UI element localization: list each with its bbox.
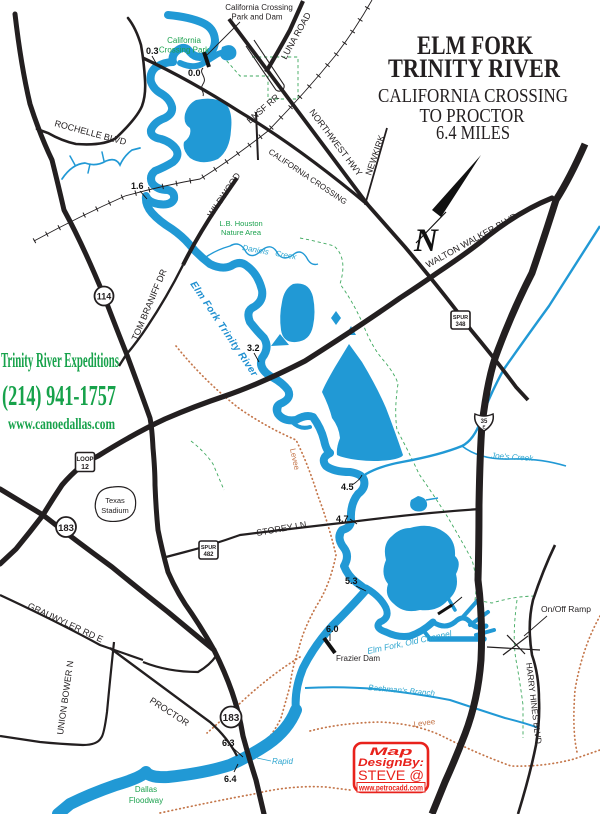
- svg-text:12: 12: [81, 464, 89, 471]
- svg-text:TRINITY RIVER: TRINITY RIVER: [388, 54, 560, 83]
- svg-text:Rapid: Rapid: [272, 757, 293, 766]
- svg-text:Frazier Dam: Frazier Dam: [336, 654, 380, 663]
- svg-text:Nature Area: Nature Area: [221, 228, 262, 237]
- svg-text:Texas: Texas: [105, 496, 125, 505]
- svg-text:Floodway: Floodway: [129, 796, 163, 805]
- svg-text:California Crossing: California Crossing: [225, 3, 293, 12]
- svg-text:183: 183: [223, 713, 240, 724]
- svg-text:STEVE @: STEVE @: [358, 767, 424, 783]
- svg-text:SPUR: SPUR: [201, 545, 216, 551]
- svg-text:Stadium: Stadium: [101, 506, 129, 515]
- svg-text:6.0: 6.0: [326, 624, 339, 634]
- svg-text:www.canoedallas.com: www.canoedallas.com: [8, 416, 115, 433]
- svg-text:114: 114: [97, 292, 112, 302]
- svg-text:5.3: 5.3: [345, 576, 358, 586]
- svg-text:SPUR: SPUR: [453, 315, 468, 321]
- svg-text:N: N: [413, 223, 439, 259]
- svg-text:(214) 941-1757: (214) 941-1757: [2, 380, 116, 412]
- svg-text:0.3: 0.3: [146, 46, 159, 56]
- svg-text:1.6: 1.6: [131, 181, 144, 191]
- svg-text:3.2: 3.2: [247, 343, 260, 353]
- svg-text:On/Off Ramp: On/Off Ramp: [541, 604, 591, 614]
- svg-text:LOOP: LOOP: [76, 457, 93, 463]
- svg-text:348: 348: [455, 322, 466, 328]
- svg-text:Dallas: Dallas: [135, 785, 157, 794]
- svg-text:L.B. Houston: L.B. Houston: [219, 219, 262, 228]
- svg-text:6.3: 6.3: [222, 738, 235, 748]
- svg-text:Crossing Park: Crossing Park: [159, 46, 210, 55]
- svg-text:www.petrocadd.com: www.petrocadd.com: [358, 784, 423, 793]
- svg-text:4.5: 4.5: [341, 482, 354, 492]
- svg-text:482: 482: [203, 552, 214, 558]
- svg-text:E: E: [482, 425, 485, 430]
- svg-text:183: 183: [58, 523, 74, 534]
- svg-text:6.4: 6.4: [224, 774, 237, 784]
- svg-text:0.0: 0.0: [188, 68, 201, 78]
- svg-text:6.4 MILES: 6.4 MILES: [436, 122, 510, 144]
- svg-text:California: California: [167, 36, 201, 45]
- svg-text:CALIFORNIA CROSSING: CALIFORNIA CROSSING: [378, 85, 568, 107]
- svg-text:Park and Dam: Park and Dam: [231, 13, 282, 22]
- svg-text:4.7: 4.7: [336, 514, 349, 524]
- svg-text:Trinity River Expeditions: Trinity River Expeditions: [1, 348, 119, 372]
